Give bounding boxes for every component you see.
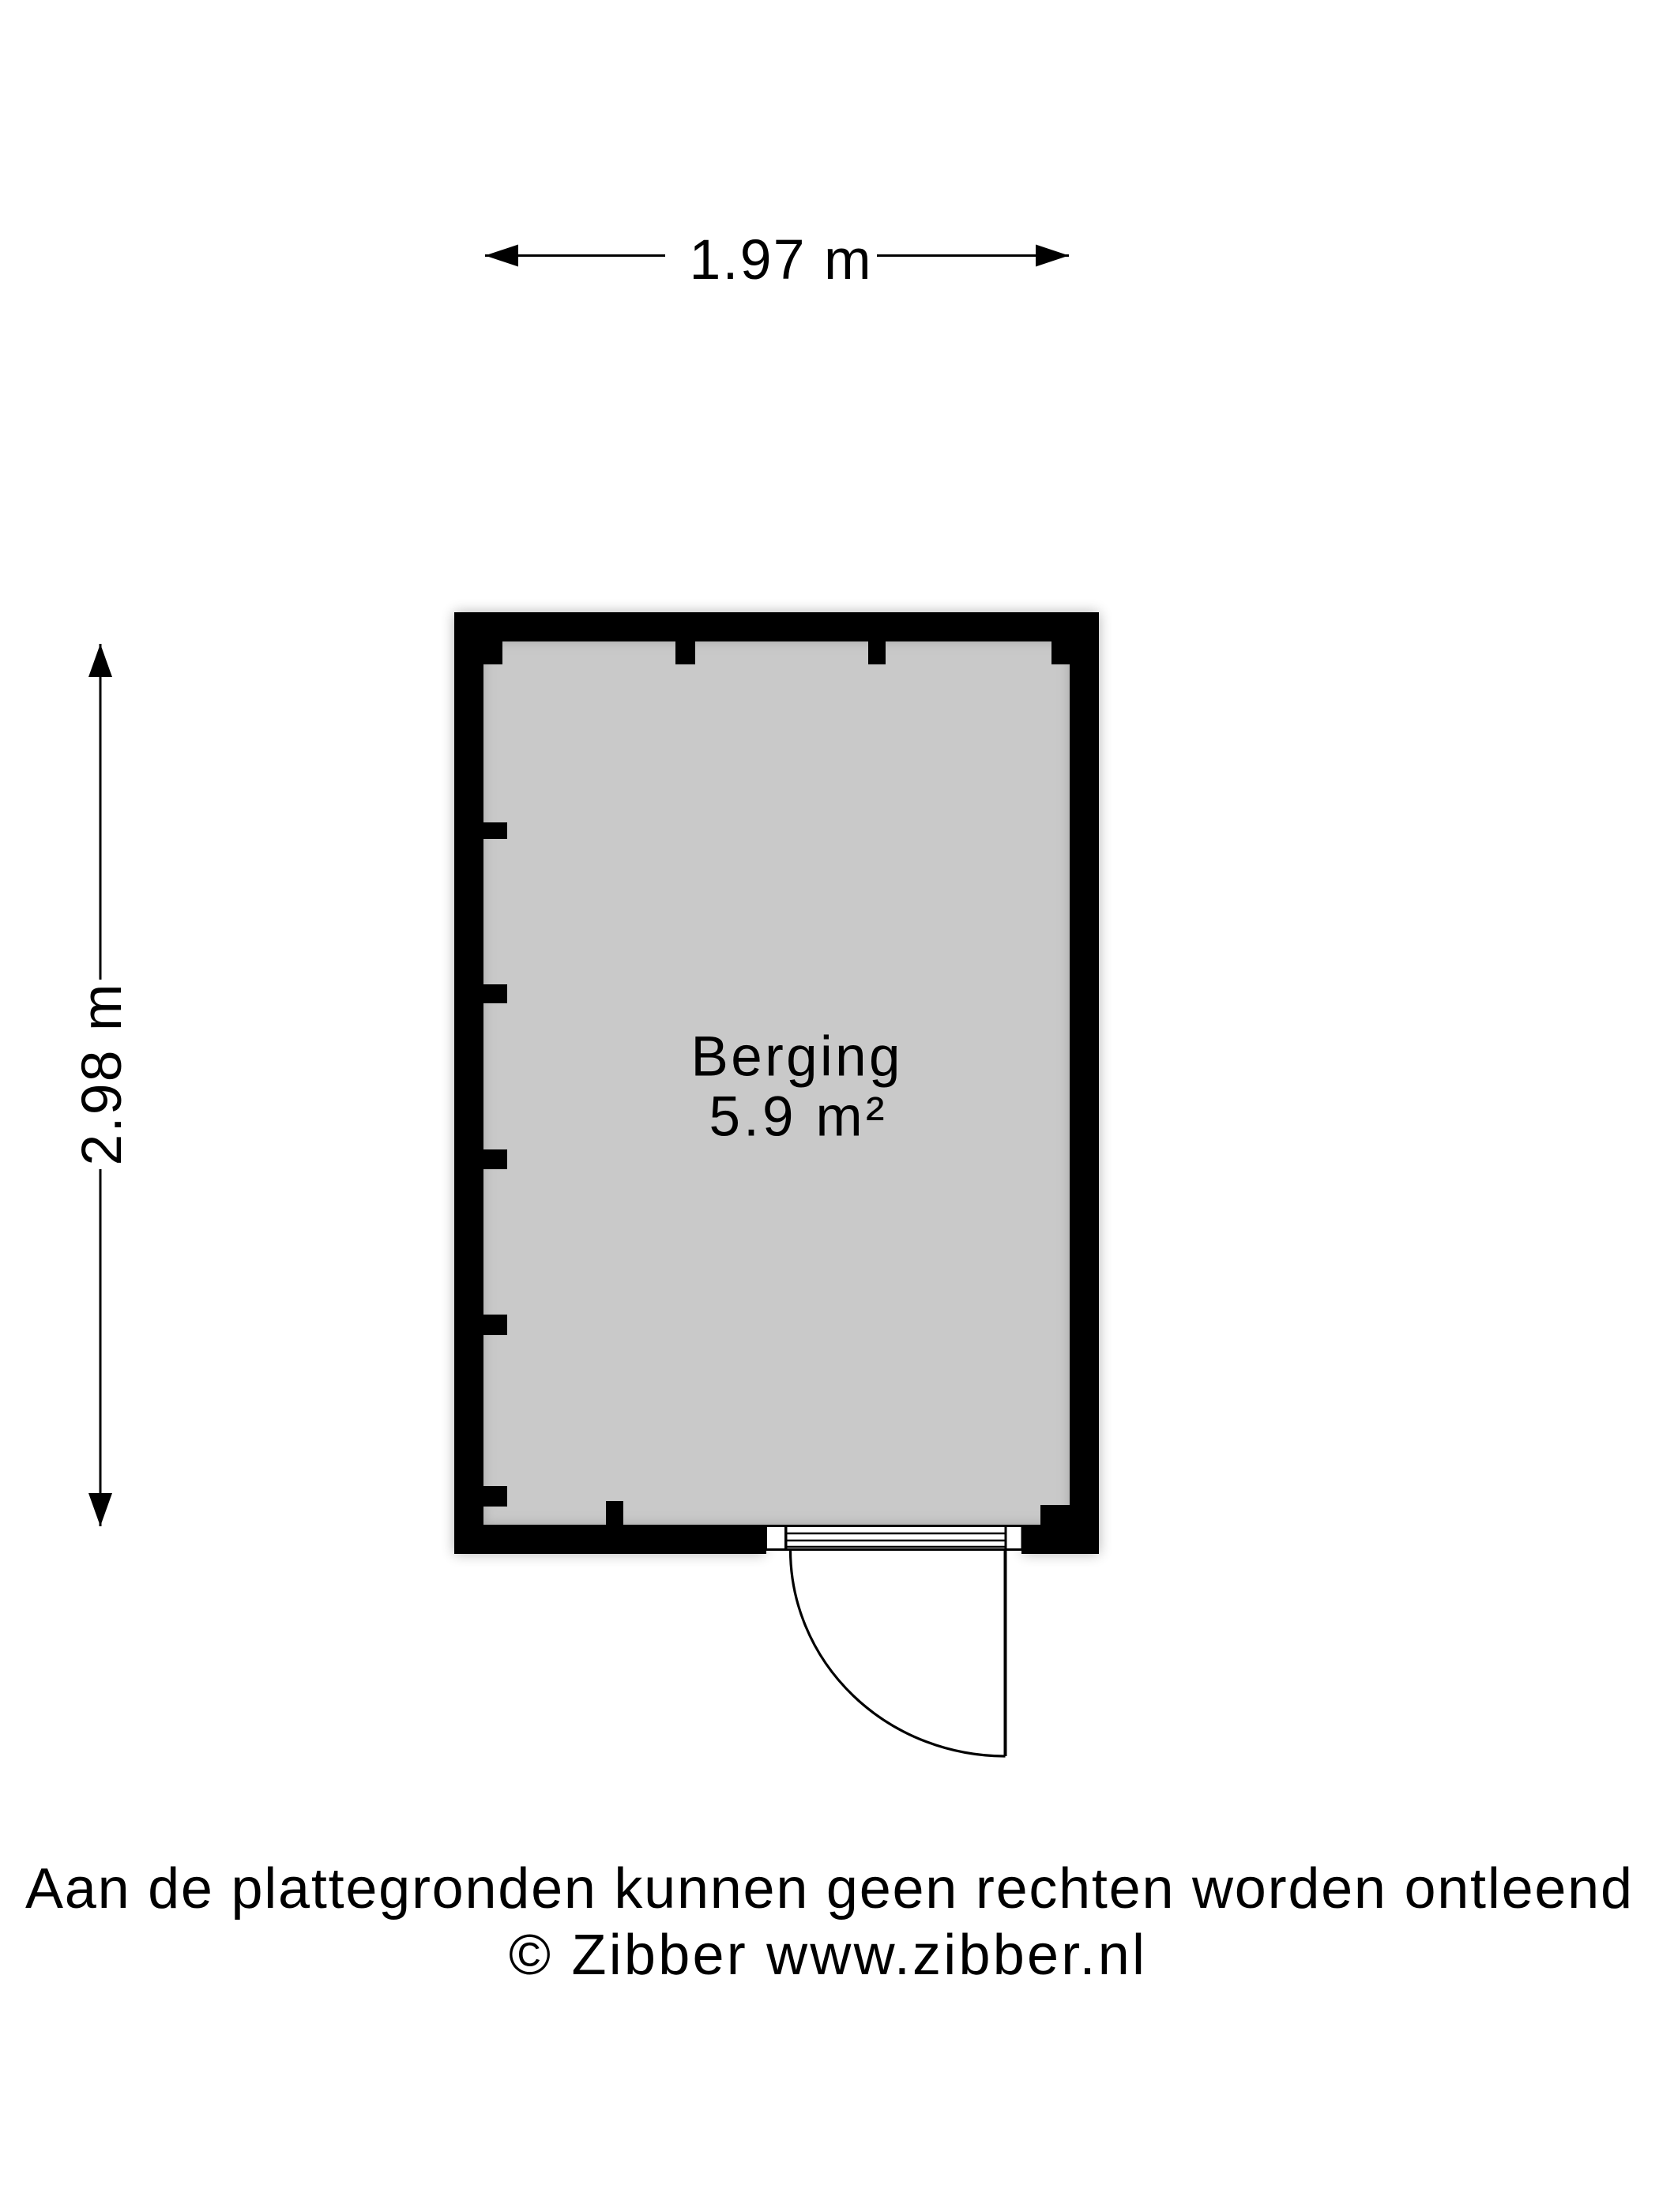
svg-text:2.98 m: 2.98 m	[70, 984, 134, 1166]
svg-text:Aan de plattegronden kunnen ge: Aan de plattegronden kunnen geen rechten…	[25, 1857, 1632, 1920]
svg-text:1.97 m: 1.97 m	[690, 228, 871, 292]
svg-text:5.9 m²: 5.9 m²	[709, 1086, 885, 1149]
svg-text:© Zibber www.zibber.nl: © Zibber www.zibber.nl	[509, 1924, 1145, 1987]
svg-text:Berging: Berging	[691, 1026, 901, 1089]
